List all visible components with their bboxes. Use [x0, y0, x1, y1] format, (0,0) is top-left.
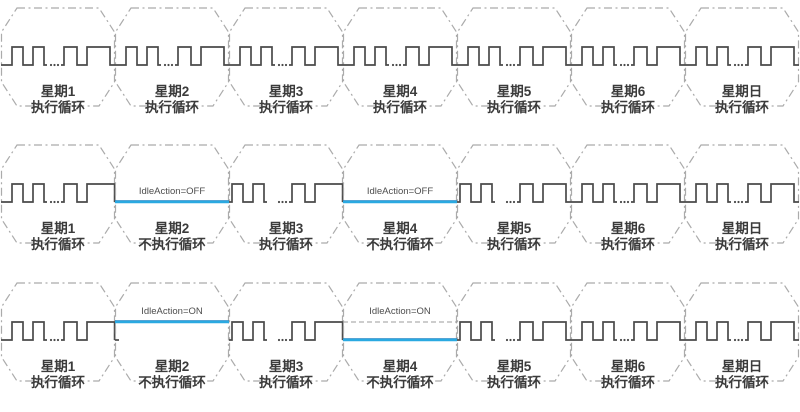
- schedule-row-all-days-executing: 星期1执行循环星期2执行循环星期3执行循环星期4执行循环星期5执行循环星期6执行…: [1, 0, 799, 137]
- waveform-continuation-dot: [57, 201, 59, 203]
- pulse-waveform: [1, 322, 115, 340]
- idle-action-label: IdleAction=OFF: [115, 187, 229, 197]
- waveform-continuation-dot: [50, 64, 52, 66]
- waveform-continuation-dot: [285, 339, 287, 341]
- idle-action-label: IdleAction=ON: [343, 307, 457, 317]
- cycle-action-label: 执行循环: [571, 376, 685, 390]
- day-cell: 星期6执行循环: [571, 137, 685, 274]
- cycle-action-label: 执行循环: [457, 376, 571, 390]
- pulse-waveform: [457, 184, 571, 202]
- waveform-continuation-dot: [623, 339, 625, 341]
- cycle-action-label: 执行循环: [115, 101, 229, 115]
- day-cell: 星期2执行循环: [115, 0, 229, 137]
- waveform-continuation-dot: [281, 201, 283, 203]
- pulse-waveform: [115, 47, 229, 65]
- cycle-action-label: 执行循环: [1, 101, 115, 115]
- waveform-continuation-dot: [278, 339, 280, 341]
- waveform-continuation-dot: [620, 339, 622, 341]
- waveform-continuation-dot: [278, 201, 280, 203]
- waveform-continuation-dot: [623, 201, 625, 203]
- day-cell: 星期日执行循环: [685, 275, 799, 412]
- day-name-label: 星期日: [685, 85, 799, 99]
- pulse-waveform: [571, 47, 685, 65]
- day-cell-canvas: [229, 275, 343, 412]
- day-cell-canvas: [457, 137, 571, 274]
- day-name-label: 星期3: [229, 222, 343, 236]
- day-name-label: 星期2: [115, 85, 229, 99]
- waveform-continuation-dot: [53, 201, 55, 203]
- day-cell-canvas: [571, 137, 685, 274]
- pulse-waveform: [457, 322, 571, 340]
- waveform-continuation-dot: [741, 64, 743, 66]
- day-cell-canvas: [1, 0, 115, 137]
- cycle-action-label: 执行循环: [229, 376, 343, 390]
- day-cell: 星期1执行循环: [1, 275, 115, 412]
- waveform-continuation-dot: [741, 339, 743, 341]
- waveform-continuation-dot: [734, 201, 736, 203]
- day-name-label: 星期6: [571, 222, 685, 236]
- day-cell-canvas: [1, 137, 115, 274]
- cycle-action-label: 执行循环: [571, 238, 685, 252]
- day-cell-canvas: [571, 275, 685, 412]
- day-cell: 星期4执行循环: [343, 0, 457, 137]
- cycle-action-label: 不执行循环: [343, 376, 457, 390]
- day-cell: 星期5执行循环: [457, 137, 571, 274]
- waveform-continuation-dot: [737, 64, 739, 66]
- day-cell: IdleAction=OFF星期2不执行循环: [115, 137, 229, 274]
- pulse-waveform: [457, 47, 571, 65]
- day-name-label: 星期6: [571, 85, 685, 99]
- waveform-continuation-dot: [50, 339, 52, 341]
- day-cell: IdleAction=OFF星期4不执行循环: [343, 137, 457, 274]
- day-name-label: 星期5: [457, 85, 571, 99]
- pulse-waveform: [571, 184, 685, 202]
- day-name-label: 星期3: [229, 360, 343, 374]
- pulse-waveform: [229, 184, 343, 202]
- day-cell-canvas: [343, 0, 457, 137]
- waveform-continuation-dot: [50, 201, 52, 203]
- waveform-continuation-dot: [509, 64, 511, 66]
- cycle-action-label: 不执行循环: [115, 238, 229, 252]
- day-name-label: 星期2: [115, 222, 229, 236]
- day-cell-canvas: [229, 0, 343, 137]
- day-cell-canvas: [457, 275, 571, 412]
- day-cell-canvas: [115, 137, 229, 274]
- day-name-label: 星期4: [343, 85, 457, 99]
- day-cell-canvas: [115, 0, 229, 137]
- weekly-schedule-diagram: 星期1执行循环星期2执行循环星期3执行循环星期4执行循环星期5执行循环星期6执行…: [0, 0, 800, 412]
- waveform-continuation-dot: [506, 339, 508, 341]
- cycle-action-label: 不执行循环: [115, 376, 229, 390]
- waveform-continuation-dot: [734, 339, 736, 341]
- waveform-continuation-dot: [399, 64, 401, 66]
- day-cell-canvas: [571, 0, 685, 137]
- waveform-continuation-dot: [509, 339, 511, 341]
- day-cell: 星期1执行循环: [1, 137, 115, 274]
- pulse-waveform: [343, 47, 457, 65]
- day-cell: 星期5执行循环: [457, 275, 571, 412]
- day-cell: 星期6执行循环: [571, 0, 685, 137]
- cycle-action-label: 执行循环: [685, 101, 799, 115]
- waveform-continuation-dot: [53, 339, 55, 341]
- waveform-continuation-dot: [171, 64, 173, 66]
- day-cell: 星期5执行循环: [457, 0, 571, 137]
- day-cell-canvas: [343, 275, 457, 412]
- pulse-waveform: [571, 322, 685, 340]
- waveform-continuation-dot: [620, 64, 622, 66]
- waveform-continuation-dot: [53, 64, 55, 66]
- day-name-label: 星期1: [1, 85, 115, 99]
- day-name-label: 星期4: [343, 222, 457, 236]
- cycle-action-label: 执行循环: [1, 376, 115, 390]
- waveform-continuation-dot: [513, 339, 515, 341]
- waveform-continuation-dot: [281, 339, 283, 341]
- waveform-continuation-dot: [737, 339, 739, 341]
- day-name-label: 星期1: [1, 222, 115, 236]
- day-cell: IdleAction=ON星期4不执行循环: [343, 275, 457, 412]
- day-name-label: 星期5: [457, 360, 571, 374]
- day-cell-canvas: [685, 137, 799, 274]
- cycle-action-label: 执行循环: [343, 101, 457, 115]
- day-name-label: 星期日: [685, 360, 799, 374]
- day-cell: 星期6执行循环: [571, 275, 685, 412]
- waveform-continuation-dot: [57, 64, 59, 66]
- waveform-continuation-dot: [278, 64, 280, 66]
- waveform-continuation-dot: [620, 201, 622, 203]
- waveform-continuation-dot: [164, 64, 166, 66]
- day-cell: 星期日执行循环: [685, 0, 799, 137]
- waveform-continuation-dot: [737, 201, 739, 203]
- waveform-continuation-dot: [627, 201, 629, 203]
- day-cell: 星期3执行循环: [229, 137, 343, 274]
- schedule-row-idle-action-on: 星期1执行循环IdleAction=ON星期2不执行循环星期3执行循环IdleA…: [1, 275, 799, 412]
- waveform-continuation-dot: [513, 201, 515, 203]
- cycle-action-label: 执行循环: [685, 238, 799, 252]
- cycle-action-label: 执行循环: [685, 376, 799, 390]
- waveform-continuation-dot: [57, 339, 59, 341]
- waveform-continuation-dot: [395, 64, 397, 66]
- day-cell: 星期1执行循环: [1, 0, 115, 137]
- cycle-action-label: 执行循环: [571, 101, 685, 115]
- waveform-continuation-dot: [167, 64, 169, 66]
- waveform-continuation-dot: [285, 201, 287, 203]
- waveform-continuation-dot: [513, 64, 515, 66]
- pulse-waveform: [229, 322, 343, 340]
- cycle-action-label: 执行循环: [457, 238, 571, 252]
- day-cell: 星期3执行循环: [229, 0, 343, 137]
- waveform-continuation-dot: [623, 64, 625, 66]
- day-cell: 星期日执行循环: [685, 137, 799, 274]
- day-name-label: 星期1: [1, 360, 115, 374]
- day-name-label: 星期3: [229, 85, 343, 99]
- pulse-waveform: [1, 47, 115, 65]
- pulse-waveform: [685, 322, 799, 340]
- idle-action-label: IdleAction=OFF: [343, 187, 457, 197]
- waveform-continuation-dot: [627, 64, 629, 66]
- day-cell-canvas: [685, 0, 799, 137]
- pulse-waveform: [685, 184, 799, 202]
- pulse-waveform: [1, 184, 115, 202]
- day-cell-canvas: [229, 137, 343, 274]
- cycle-action-label: 执行循环: [229, 238, 343, 252]
- waveform-continuation-dot: [506, 64, 508, 66]
- waveform-continuation-dot: [281, 64, 283, 66]
- pulse-waveform: [229, 47, 343, 65]
- cycle-action-label: 执行循环: [457, 101, 571, 115]
- day-name-label: 星期5: [457, 222, 571, 236]
- schedule-row-idle-action-off: 星期1执行循环IdleAction=OFF星期2不执行循环星期3执行循环Idle…: [1, 137, 799, 274]
- day-name-label: 星期日: [685, 222, 799, 236]
- waveform-continuation-dot: [392, 64, 394, 66]
- idle-action-label: IdleAction=ON: [115, 307, 229, 317]
- day-cell-canvas: [457, 0, 571, 137]
- day-name-label: 星期2: [115, 360, 229, 374]
- waveform-continuation-dot: [627, 339, 629, 341]
- cycle-action-label: 执行循环: [1, 238, 115, 252]
- waveform-continuation-dot: [741, 201, 743, 203]
- waveform-continuation-dot: [506, 201, 508, 203]
- day-name-label: 星期4: [343, 360, 457, 374]
- day-cell-canvas: [685, 275, 799, 412]
- cycle-action-label: 执行循环: [229, 101, 343, 115]
- waveform-continuation-dot: [509, 201, 511, 203]
- day-cell-canvas: [343, 137, 457, 274]
- day-name-label: 星期6: [571, 360, 685, 374]
- waveform-continuation-dot: [285, 64, 287, 66]
- day-cell: 星期3执行循环: [229, 275, 343, 412]
- cycle-action-label: 不执行循环: [343, 238, 457, 252]
- day-cell: IdleAction=ON星期2不执行循环: [115, 275, 229, 412]
- day-cell-canvas: [115, 275, 229, 412]
- pulse-waveform: [685, 47, 799, 65]
- day-cell-canvas: [1, 275, 115, 412]
- waveform-continuation-dot: [734, 64, 736, 66]
